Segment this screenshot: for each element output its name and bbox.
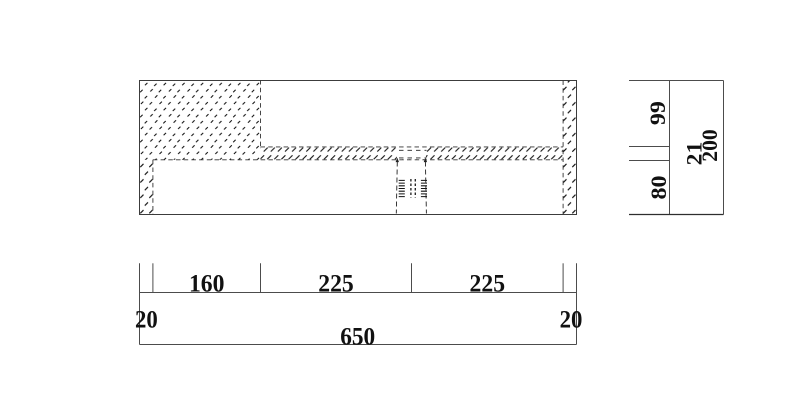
svg-text:650: 650 xyxy=(340,323,375,350)
svg-text:225: 225 xyxy=(318,270,354,297)
svg-text:225: 225 xyxy=(470,270,506,297)
svg-text:20: 20 xyxy=(135,307,158,334)
svg-text:20: 20 xyxy=(560,307,583,334)
svg-text:80: 80 xyxy=(646,176,671,200)
svg-text:99: 99 xyxy=(645,101,670,125)
svg-text:160: 160 xyxy=(189,270,225,297)
svg-text:200: 200 xyxy=(697,129,722,162)
